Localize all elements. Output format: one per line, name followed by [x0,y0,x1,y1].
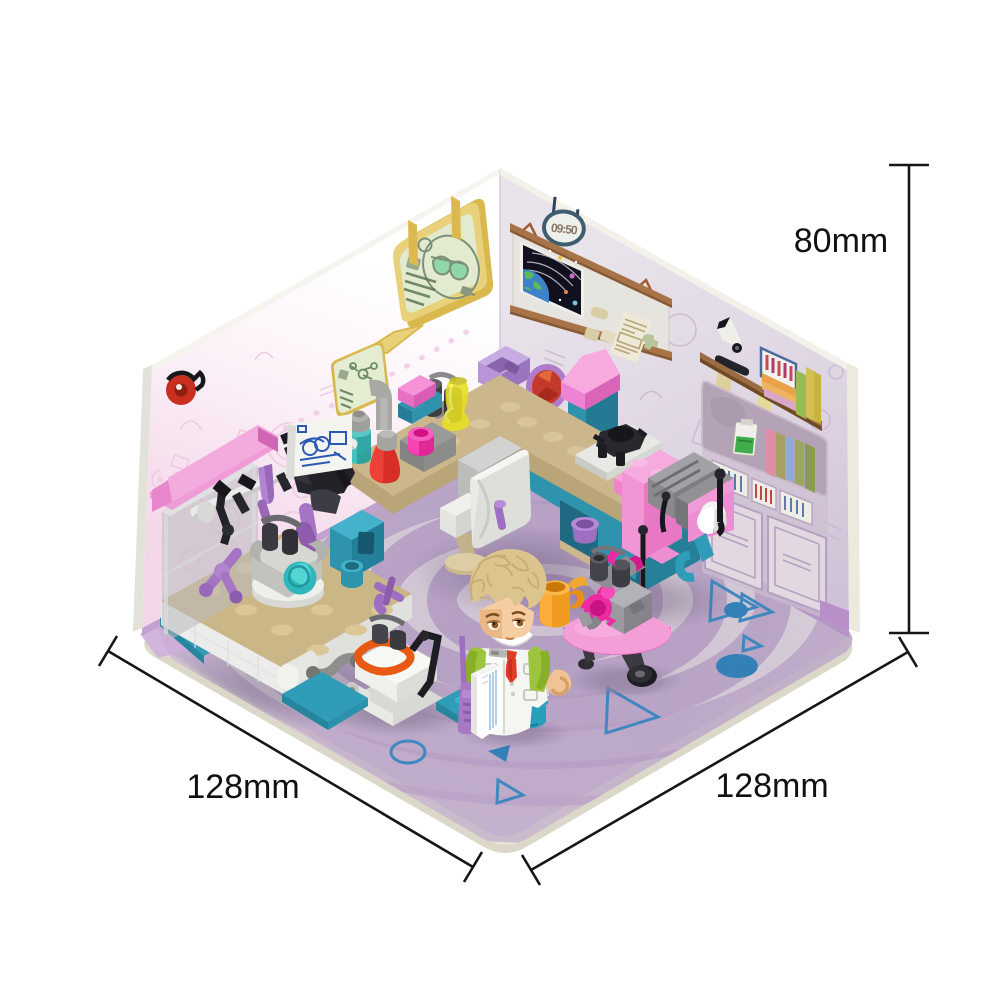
svg-text:128mm: 128mm [186,768,299,806]
svg-text:09:50: 09:50 [550,221,578,238]
svg-text:128mm: 128mm [715,767,828,805]
svg-text:80mm: 80mm [794,222,888,260]
